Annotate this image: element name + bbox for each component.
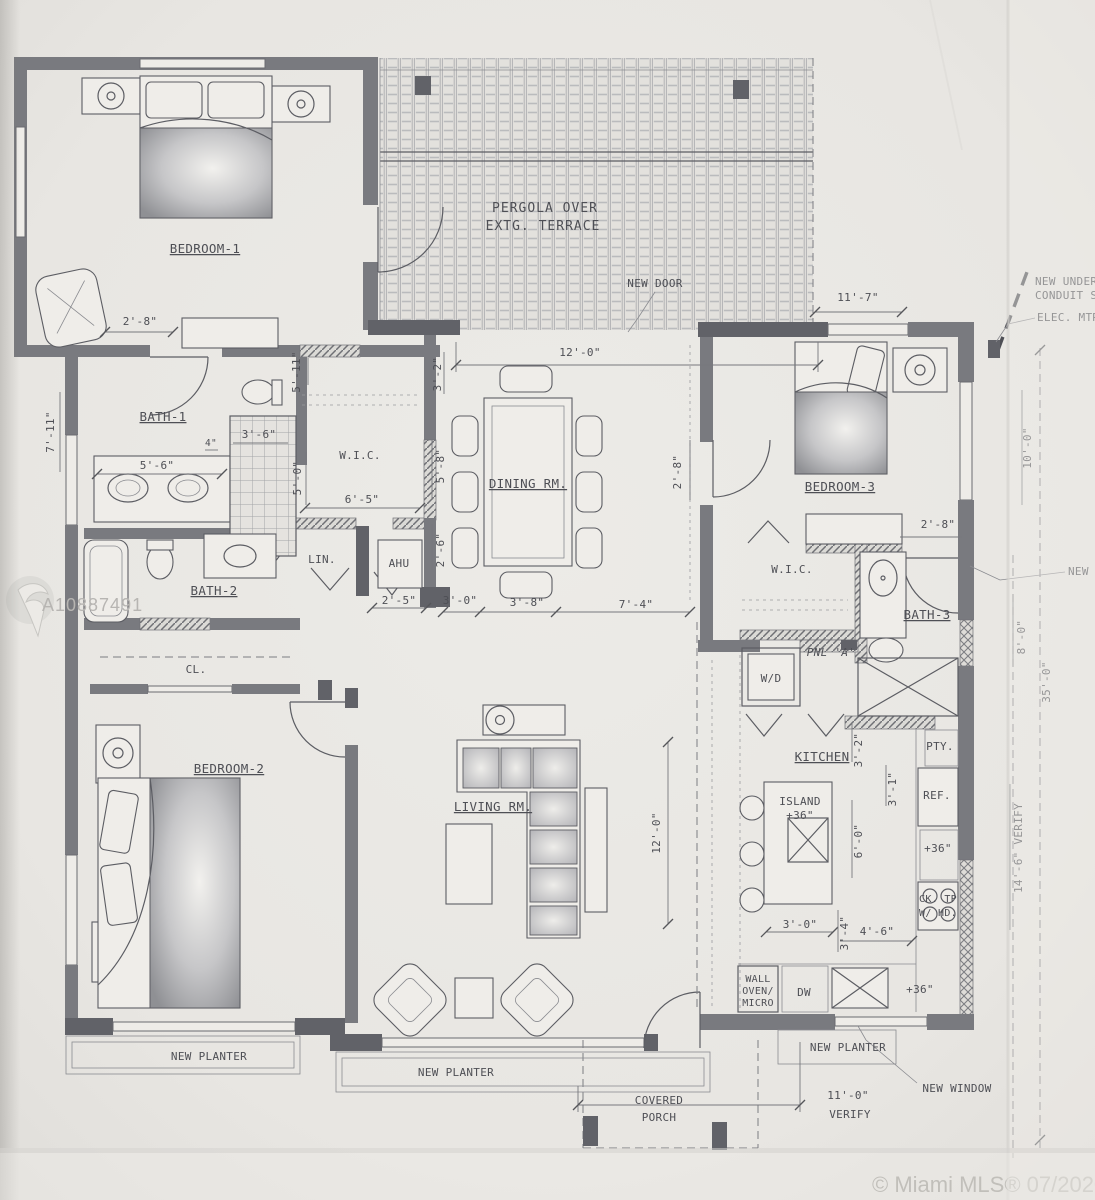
cooktop bbox=[918, 882, 958, 930]
dim-wic-l-d: 5'-0" bbox=[291, 461, 304, 496]
label-wic-left: W.I.C. bbox=[339, 449, 381, 462]
stool bbox=[740, 796, 764, 820]
porch-post bbox=[712, 1122, 727, 1150]
room-label-kitchen: KITCHEN bbox=[795, 749, 850, 764]
dim-bed1-door: 2'-8" bbox=[123, 315, 158, 328]
note-planter-center: NEW PLANTER bbox=[418, 1066, 494, 1079]
label-wall-oven-1: WALL bbox=[745, 974, 770, 985]
window bbox=[960, 382, 972, 500]
chair bbox=[452, 528, 478, 568]
dim-porch-w: 11'-0" bbox=[827, 1089, 869, 1102]
dim-shower-jamb: 4" bbox=[205, 438, 217, 449]
dim-living-d: 12'-0" bbox=[650, 812, 663, 854]
note-new-door: NEW DOOR bbox=[627, 277, 682, 290]
toilet bbox=[242, 380, 274, 404]
note-planter-right: NEW PLANTER bbox=[810, 1041, 886, 1054]
pillow bbox=[146, 82, 202, 118]
room-label-bath3: BATH-3 bbox=[904, 607, 951, 622]
window bbox=[835, 1017, 927, 1026]
label-wic-right: W.I.C. bbox=[771, 563, 813, 576]
chair bbox=[576, 416, 602, 456]
note-planter-left: NEW PLANTER bbox=[171, 1050, 247, 1063]
stool bbox=[740, 888, 764, 912]
dim-west: 7'-11" bbox=[44, 411, 57, 453]
label-dishwasher: DW bbox=[797, 986, 811, 999]
dim-terrace: 12'-0" bbox=[559, 346, 601, 359]
note-counter-36-bottom: +36" bbox=[906, 983, 934, 996]
dim-dining-n: 3'-2" bbox=[431, 357, 444, 392]
dim-bath1-e: 5'-11" bbox=[290, 351, 303, 393]
sink-vanity bbox=[204, 534, 276, 578]
pergola-post bbox=[415, 76, 431, 95]
dim-ahu-d: 2'-6" bbox=[434, 533, 447, 568]
room-label-dining: DINING RM. bbox=[489, 476, 567, 491]
label-pergola-1: PERGOLA OVER bbox=[492, 201, 598, 216]
coffee-table bbox=[446, 824, 492, 904]
dim-shower: 3'-6" bbox=[242, 428, 277, 441]
electric-meter bbox=[988, 340, 1000, 358]
porch-post bbox=[583, 1116, 598, 1146]
label-fridge: REF. bbox=[923, 789, 951, 802]
sliding-door bbox=[113, 1022, 295, 1031]
note-new-window: NEW WINDOW bbox=[922, 1082, 991, 1095]
dim-wic-l-e: 5'-8" bbox=[434, 449, 447, 484]
dim-kitchen-s2: 4'-6" bbox=[860, 925, 895, 938]
label-panel: PNL 'A' bbox=[807, 646, 855, 659]
room-label-bath1: BATH-1 bbox=[140, 409, 187, 424]
sink-vanity bbox=[860, 552, 906, 638]
label-cooktop-2: W/ HD. bbox=[919, 908, 957, 919]
window bbox=[66, 435, 77, 525]
dim-porch-verify: VERIFY bbox=[829, 1108, 871, 1121]
pillow bbox=[208, 82, 264, 118]
chair bbox=[500, 572, 552, 598]
label-island: ISLAND bbox=[779, 795, 821, 808]
dresser bbox=[806, 514, 902, 544]
dim-hall: 2'-5" bbox=[382, 594, 417, 607]
dim-ref-w: 3'-1" bbox=[886, 772, 899, 807]
label-linen: LIN. bbox=[308, 553, 336, 566]
label-wall-oven-3: MICRO bbox=[742, 998, 774, 1009]
note-counter-36: +36" bbox=[924, 842, 952, 855]
window bbox=[140, 59, 265, 68]
dim-kitchen-s1: 3'-4" bbox=[838, 916, 851, 951]
scanned-floor-plan: BEDROOM-1 BATH-1 BATH-2 BEDROOM-2 CL. W.… bbox=[0, 0, 1095, 1200]
label-closet: CL. bbox=[186, 663, 207, 676]
room-label-living: LIVING RM. bbox=[454, 799, 532, 814]
dim-island-s: 3'-0" bbox=[783, 918, 818, 931]
stool bbox=[740, 842, 764, 866]
chair bbox=[500, 366, 552, 392]
label-pantry: PTY. bbox=[926, 740, 954, 753]
label-porch-1: COVERED bbox=[635, 1094, 683, 1107]
dim-kitchen-n: 3'-2" bbox=[852, 733, 865, 768]
dim-bath3-top: 2'-8" bbox=[921, 518, 956, 531]
pergola-post bbox=[733, 80, 749, 99]
label-pergola-2: EXTG. TERRACE bbox=[486, 219, 601, 234]
label-cooktop-1: CK. TP bbox=[919, 894, 957, 905]
chair bbox=[452, 472, 478, 512]
label-washer-dryer: W/D bbox=[761, 672, 782, 685]
dim-dining-s3: 7'-4" bbox=[619, 598, 654, 611]
dim-island-e: 6'-0" bbox=[852, 824, 865, 859]
chair bbox=[452, 416, 478, 456]
label-porch-2: PORCH bbox=[642, 1111, 677, 1124]
dresser bbox=[182, 318, 278, 348]
listing-id-watermark: A10887491 bbox=[42, 595, 143, 615]
label-ahu: AHU bbox=[389, 557, 410, 570]
closet-doors bbox=[148, 686, 232, 692]
window bbox=[66, 855, 77, 965]
dim-wic-l-w: 6'-5" bbox=[345, 493, 380, 506]
label-wall-oven-2: OVEN/ bbox=[742, 986, 774, 997]
sliding-door bbox=[382, 1038, 644, 1047]
dim-dining-e: 2'-8" bbox=[671, 455, 684, 490]
chair bbox=[576, 528, 602, 568]
sofa-table bbox=[585, 788, 607, 912]
room-label-bedroom2: BEDROOM-2 bbox=[194, 761, 264, 776]
floor-plan-drawing: BEDROOM-1 BATH-1 BATH-2 BEDROOM-2 CL. W.… bbox=[0, 0, 1095, 1200]
label-island-height: +36" bbox=[786, 809, 814, 822]
side-table bbox=[455, 978, 493, 1018]
chair bbox=[576, 472, 602, 512]
dim-bed3-top: 11'-7" bbox=[837, 291, 879, 304]
window bbox=[828, 324, 908, 335]
room-label-bedroom1: BEDROOM-1 bbox=[170, 241, 240, 256]
dim-dining-s1: 3'-0" bbox=[443, 594, 478, 607]
room-label-bedroom3: BEDROOM-3 bbox=[805, 479, 875, 494]
pergola-terrace bbox=[380, 58, 813, 330]
dim-dining-s2: 3'-8" bbox=[510, 596, 545, 609]
room-label-bath2: BATH-2 bbox=[191, 583, 238, 598]
dim-vanity: 5'-6" bbox=[140, 459, 175, 472]
